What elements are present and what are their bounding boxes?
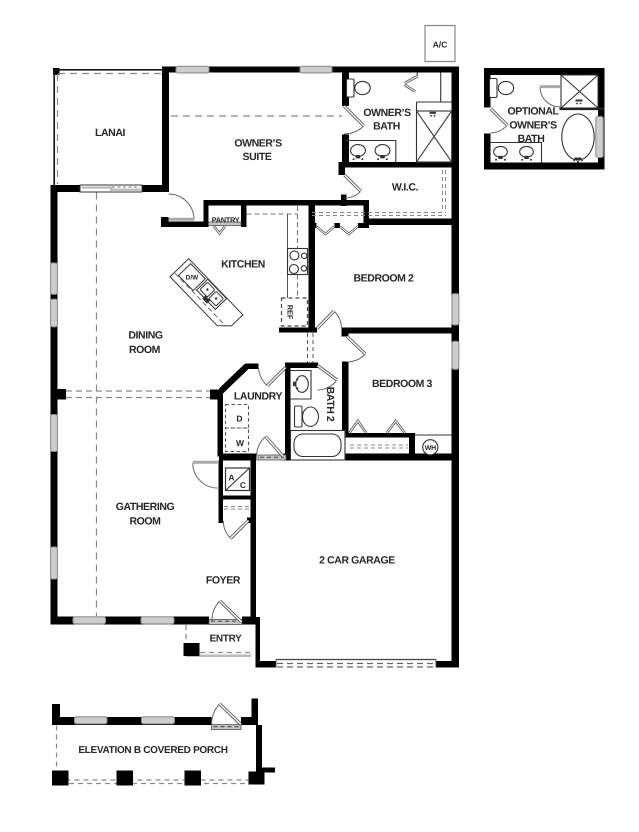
svg-text:BATH 2: BATH 2 <box>324 387 336 422</box>
svg-text:FOYER: FOYER <box>206 575 241 587</box>
svg-text:ELEVATION B COVERED PORCH: ELEVATION B COVERED PORCH <box>78 745 227 756</box>
svg-text:GATHERING: GATHERING <box>116 501 175 513</box>
svg-text:DINING: DINING <box>128 330 163 342</box>
svg-text:W: W <box>236 438 245 448</box>
svg-text:BEDROOM 3: BEDROOM 3 <box>372 378 433 390</box>
svg-text:2 CAR GARAGE: 2 CAR GARAGE <box>319 555 395 567</box>
svg-text:SUITE: SUITE <box>243 151 272 163</box>
svg-text:OPTIONAL: OPTIONAL <box>507 106 559 118</box>
svg-text:ROOM: ROOM <box>129 344 161 356</box>
svg-text:BATH: BATH <box>518 133 545 145</box>
svg-text:D: D <box>236 414 242 424</box>
svg-text:BEDROOM 2: BEDROOM 2 <box>354 273 415 285</box>
svg-text:PANTRY: PANTRY <box>212 215 240 224</box>
svg-text:BATH: BATH <box>373 121 400 133</box>
svg-text:A: A <box>228 473 234 483</box>
svg-text:D/W: D/W <box>186 275 200 282</box>
svg-text:C: C <box>240 480 246 490</box>
svg-text:WH: WH <box>425 445 436 452</box>
svg-text:A/C: A/C <box>433 40 448 50</box>
svg-text:OWNER’S: OWNER’S <box>234 138 282 150</box>
svg-text:W.I.C.: W.I.C. <box>392 182 419 194</box>
svg-text:LANAI: LANAI <box>95 127 126 139</box>
svg-text:REF: REF <box>286 305 295 320</box>
svg-text:OWNER’S: OWNER’S <box>363 107 411 119</box>
svg-text:OWNER’S: OWNER’S <box>509 120 557 132</box>
svg-text:LAUNDRY: LAUNDRY <box>234 391 283 403</box>
svg-text:KITCHEN: KITCHEN <box>221 259 265 271</box>
svg-text:ENTRY: ENTRY <box>209 634 242 645</box>
svg-text:ROOM: ROOM <box>129 516 161 528</box>
